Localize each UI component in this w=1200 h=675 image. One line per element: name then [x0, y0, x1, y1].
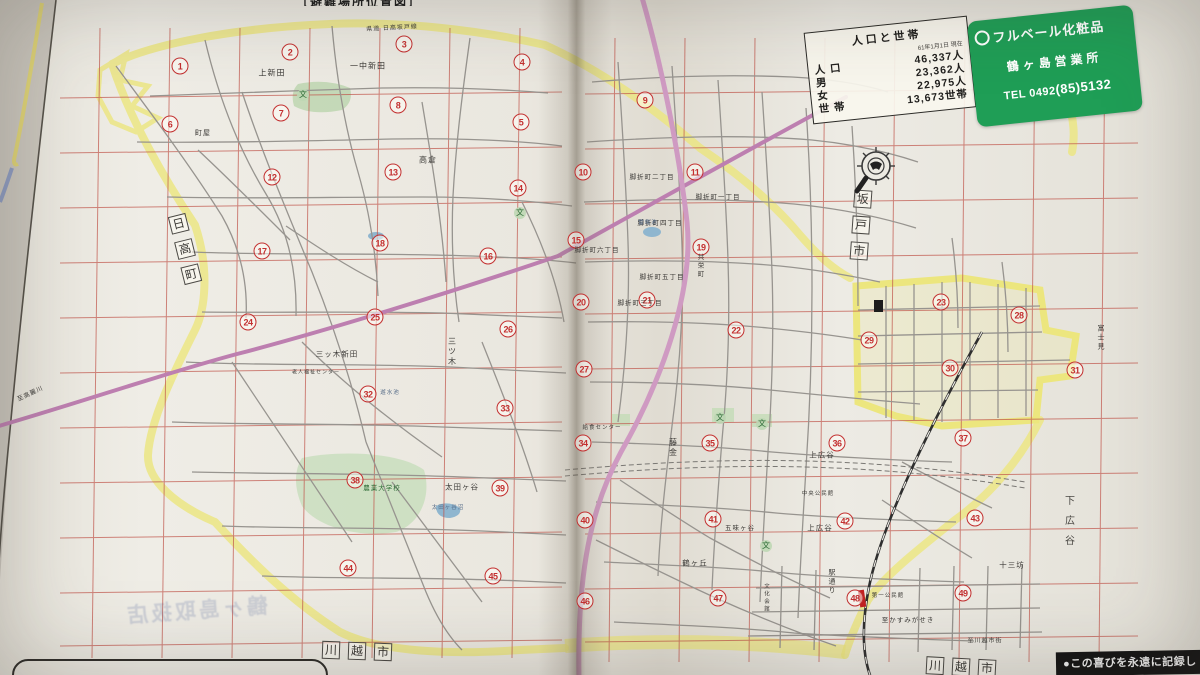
school-icon: 文: [756, 418, 768, 430]
place-label: 共栄町: [694, 253, 704, 279]
map-marker-3: 3: [396, 36, 413, 53]
bottom-ad-strip: ●この喜びを永遠に記録し: [1056, 650, 1200, 675]
map-marker-14: 14: [510, 180, 527, 197]
map-marker-46: 46: [577, 593, 594, 610]
book-photo: 1234567891011121314151617181920212223242…: [0, 0, 1200, 675]
page-caption: 〔避難場所位置図〕: [296, 0, 422, 6]
map-marker-27: 27: [576, 361, 593, 378]
school-icon: 文: [297, 89, 309, 101]
place-label: 至かすみがせき: [882, 614, 935, 624]
map-marker-49: 49: [955, 585, 972, 602]
map-marker-32: 32: [360, 386, 377, 403]
map-marker-4: 4: [514, 54, 531, 71]
map-marker-20: 20: [573, 294, 590, 311]
building-symbol: [874, 300, 883, 312]
map-marker-35: 35: [702, 435, 719, 452]
place-label: 脚折町一丁目: [696, 191, 741, 201]
place-label: 給食センター: [582, 423, 621, 431]
map-marker-22: 22: [728, 322, 745, 339]
school-icon: 文: [514, 207, 526, 219]
map-marker-40: 40: [577, 512, 594, 529]
map-marker-41: 41: [705, 511, 722, 528]
population-stats-box: 人口と世帯 61年1月1日 現在 人 口 46,337人 男 23,362人 女…: [804, 16, 977, 125]
map-marker-7: 7: [273, 105, 290, 122]
cosmetics-ad-box: フルベール化粧品 鶴ヶ島営業所 TEL 0492(85)5132: [967, 5, 1143, 128]
map-marker-47: 47: [710, 590, 727, 607]
map-marker-2: 2: [282, 44, 299, 61]
map-marker-16: 16: [480, 248, 497, 265]
place-label: 鶴ヶ丘: [682, 558, 708, 569]
place-label: 脚折町二丁目: [630, 171, 675, 181]
place-label: 五味ヶ谷: [725, 522, 755, 532]
ad-branch-name: 鶴ヶ島営業所: [977, 45, 1132, 78]
place-label: 農業大学校: [363, 482, 401, 492]
place-label: 脚折町六丁目: [575, 244, 620, 254]
map-marker-13: 13: [385, 164, 402, 181]
compass-icon: [850, 146, 900, 202]
map-marker-5: 5: [513, 114, 530, 131]
place-label: 遊水池: [380, 388, 400, 396]
map-marker-37: 37: [955, 430, 972, 447]
place-label: 太田ヶ谷沼: [432, 503, 465, 511]
map-marker-38: 38: [347, 472, 364, 489]
place-label: 上広谷: [807, 523, 833, 534]
map-marker-31: 31: [1067, 362, 1084, 379]
map-marker-34: 34: [575, 435, 592, 452]
map-marker-24: 24: [240, 314, 257, 331]
ad-phone: TEL 0492(85)5132: [980, 74, 1135, 105]
fleuvert-logo-icon: [974, 30, 990, 46]
place-label: 脚折町五丁目: [640, 271, 685, 281]
place-label: 老人福祉センター: [292, 369, 340, 376]
place-label: 藤金: [668, 438, 679, 458]
municipality-label: 川越市: [921, 652, 1000, 675]
map-marker-39: 39: [492, 480, 509, 497]
place-label: 富士見: [1095, 325, 1105, 352]
ad-brand-name: フルベール化粧品: [992, 16, 1105, 47]
map-marker-17: 17: [254, 243, 271, 260]
map-marker-26: 26: [500, 321, 517, 338]
map-marker-29: 29: [861, 332, 878, 349]
place-label: 三ツ木: [447, 337, 458, 367]
ad-brand-line: フルベール化粧品: [974, 13, 1129, 48]
map-marker-10: 10: [575, 164, 592, 181]
map-marker-25: 25: [367, 309, 384, 326]
map-marker-48: 48: [847, 590, 864, 607]
adjacent-map-frame: [12, 659, 328, 675]
map-marker-9: 9: [637, 92, 654, 109]
map-marker-44: 44: [340, 560, 357, 577]
place-label: 上広谷: [809, 450, 835, 461]
map-marker-11: 11: [687, 164, 704, 181]
place-label: 三ッ木新田: [316, 349, 359, 360]
place-label: 駅通り: [826, 569, 836, 596]
map-marker-43: 43: [967, 510, 984, 527]
map-marker-30: 30: [942, 360, 959, 377]
map-marker-12: 12: [264, 169, 281, 186]
municipality-label: 下広谷: [1060, 492, 1080, 552]
municipality-label: 川越市: [318, 637, 397, 666]
place-label: 雷電池: [638, 218, 658, 226]
place-label: 高倉: [419, 155, 437, 166]
map-marker-33: 33: [497, 400, 514, 417]
place-label: 太田ヶ谷: [445, 482, 479, 493]
school-icon: 文: [714, 412, 726, 424]
place-label: 至川越市街: [967, 636, 1002, 645]
place-label: 上新田: [259, 68, 286, 79]
place-label: 脚折町三丁目: [618, 297, 663, 307]
place-label: 町屋: [195, 128, 211, 138]
map-marker-28: 28: [1011, 307, 1028, 324]
map-marker-45: 45: [485, 568, 502, 585]
place-label: 十三坊: [999, 560, 1025, 571]
map-marker-18: 18: [372, 235, 389, 252]
place-label: 文化会館: [762, 583, 770, 613]
map-marker-42: 42: [837, 513, 854, 530]
school-icon: 文: [760, 540, 772, 552]
place-label: 一中新田: [350, 61, 386, 72]
map-marker-23: 23: [933, 294, 950, 311]
map-marker-8: 8: [390, 97, 407, 114]
place-label: 中央公民館: [802, 489, 835, 497]
map-marker-1: 1: [172, 58, 189, 75]
place-label: 第一公民館: [872, 591, 905, 599]
map-marker-6: 6: [162, 116, 179, 133]
